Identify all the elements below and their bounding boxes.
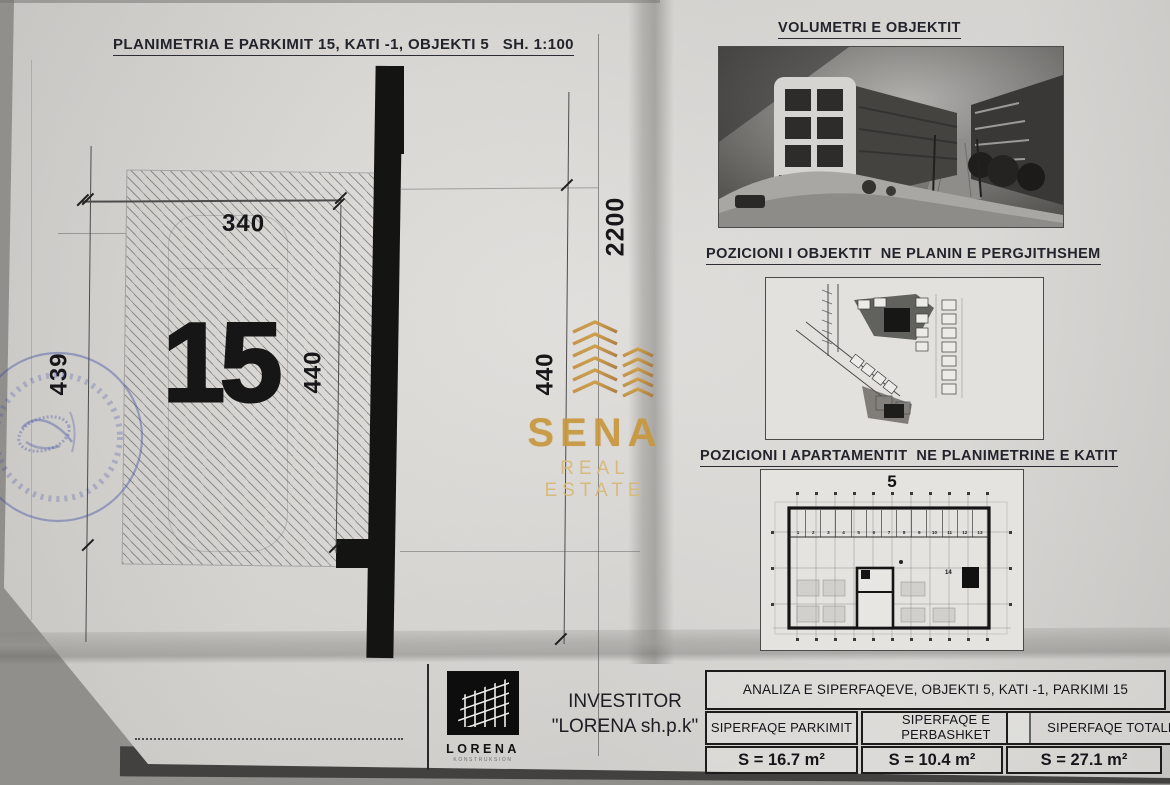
stall-number: 8 — [897, 510, 912, 537]
sena-watermark: SENA REAL ESTATE — [505, 318, 685, 502]
stall-number: 4 — [836, 510, 851, 537]
site-plan-drawing — [766, 278, 1043, 439]
stall-number: 9 — [912, 510, 927, 537]
value-parkimit: S = 16.7 m² — [705, 746, 858, 774]
analysis-title: ANALIZA E SIPERFAQEVE, OBJEKTI 5, KATI -… — [743, 682, 1128, 698]
stall-number: 5 — [852, 510, 867, 537]
investor-label: INVESTITOR — [540, 690, 710, 715]
volumetri-title: VOLUMETRI E OBJEKTIT — [778, 20, 961, 39]
dim-label-2200: 2200 — [601, 197, 630, 257]
col-header-parkimit: SIPERFAQE PARKIMIT — [705, 711, 858, 745]
analysis-title-cell: ANALIZA E SIPERFAQEVE, OBJEKTI 5, KATI -… — [705, 670, 1166, 710]
wall-stub — [336, 539, 376, 568]
header-text: SIPERFAQE E PERBASHKET — [877, 713, 1015, 743]
dim-label-340: 340 — [222, 210, 266, 239]
watermark-brand: SENA — [505, 411, 685, 456]
header-text: SIPERFAQE TOTALE — [1047, 721, 1170, 736]
highlighted-stall-label: 14 — [945, 570, 952, 576]
col-header-totale: SIPERFAQE TOTALE — [1006, 711, 1170, 745]
lorena-logo-text: LORENA — [440, 742, 526, 756]
floor-plan-title: POZICIONI I APARTAMENTIT NE PLANIMETRINE… — [700, 448, 1118, 467]
sena-buildings-icon — [535, 318, 655, 404]
grid-line — [400, 551, 640, 552]
notary-stamp-icon — [0, 342, 172, 537]
stall-number: 12 — [958, 510, 973, 537]
highlighted-parking-marker — [962, 567, 979, 588]
render-scene — [719, 47, 1063, 227]
stall-number: 10 — [927, 510, 942, 537]
floor-plan-box: 5 — [760, 469, 1024, 651]
stall-number: 6 — [867, 510, 882, 537]
paper-top-edge — [0, 0, 660, 3]
value-text: S = 27.1 m² — [1041, 751, 1128, 770]
building-render-photo — [718, 46, 1064, 228]
signature-dotted-line — [135, 738, 403, 740]
value-text: S = 10.4 m² — [889, 751, 976, 770]
lorena-logo: LORENA KONSTRUKSION — [440, 671, 526, 763]
value-perbashket: S = 10.4 m² — [861, 746, 1003, 774]
investor-block: INVESTITOR "LORENA sh.p.k" — [540, 690, 710, 739]
investor-name: "LORENA sh.p.k" — [540, 715, 710, 740]
stall-number: 2 — [806, 510, 821, 537]
floor-plan-object-label: 5 — [761, 472, 1023, 492]
floor-plan-drawing — [761, 470, 1023, 650]
drawing-title: PLANIMETRIA E PARKIMIT 15, KATI -1, OBJE… — [113, 36, 574, 56]
stall-number: 3 — [821, 510, 836, 537]
table-left-border — [427, 664, 429, 770]
site-plan-box — [765, 277, 1044, 440]
site-plan-title: POZICIONI I OBJEKTIT NE PLANIN E PERGJIT… — [706, 246, 1101, 265]
stall-number: 13 — [973, 510, 987, 537]
lorena-logo-subtext: KONSTRUKSION — [440, 757, 526, 763]
lorena-logo-icon — [447, 671, 519, 735]
grid-line — [58, 233, 126, 234]
watermark-tagline: REAL ESTATE — [505, 458, 685, 502]
wall-top-step — [385, 66, 404, 154]
parking-stall-row: 1 2 3 4 5 6 7 8 9 10 11 12 13 — [791, 510, 987, 537]
dim-label-440-right: 440 — [300, 350, 328, 393]
stall-number: 7 — [882, 510, 897, 537]
header-text: SIPERFAQE PARKIMIT — [711, 721, 852, 736]
value-text: S = 16.7 m² — [738, 751, 825, 770]
value-totale: S = 27.1 m² — [1006, 746, 1162, 774]
stall-number: 11 — [943, 510, 958, 537]
stall-number: 1 — [791, 510, 806, 537]
scanned-parking-plan-document: PLANIMETRIA E PARKIMIT 15, KATI -1, OBJE… — [0, 0, 1170, 785]
